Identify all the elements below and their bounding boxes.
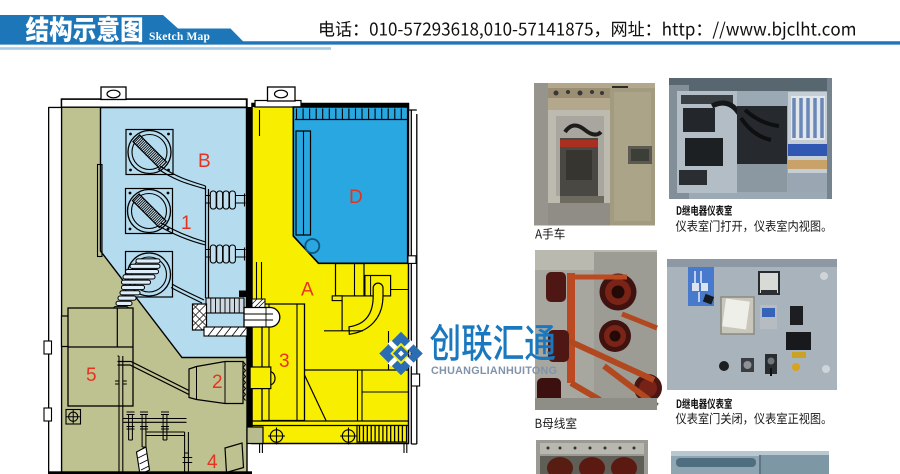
svg-text:Sketch Map: Sketch Map (149, 31, 210, 43)
svg-text:2: 2 (212, 372, 223, 393)
svg-text:D: D (349, 187, 363, 208)
svg-text:5: 5 (86, 365, 97, 386)
svg-text:CHUANGLIANHUITONG: CHUANGLIANHUITONG (431, 365, 557, 377)
svg-text:3: 3 (279, 351, 290, 372)
svg-text:B: B (198, 151, 211, 172)
svg-text:A: A (301, 280, 314, 301)
svg-text:4: 4 (207, 452, 218, 473)
svg-text:1: 1 (181, 213, 192, 234)
